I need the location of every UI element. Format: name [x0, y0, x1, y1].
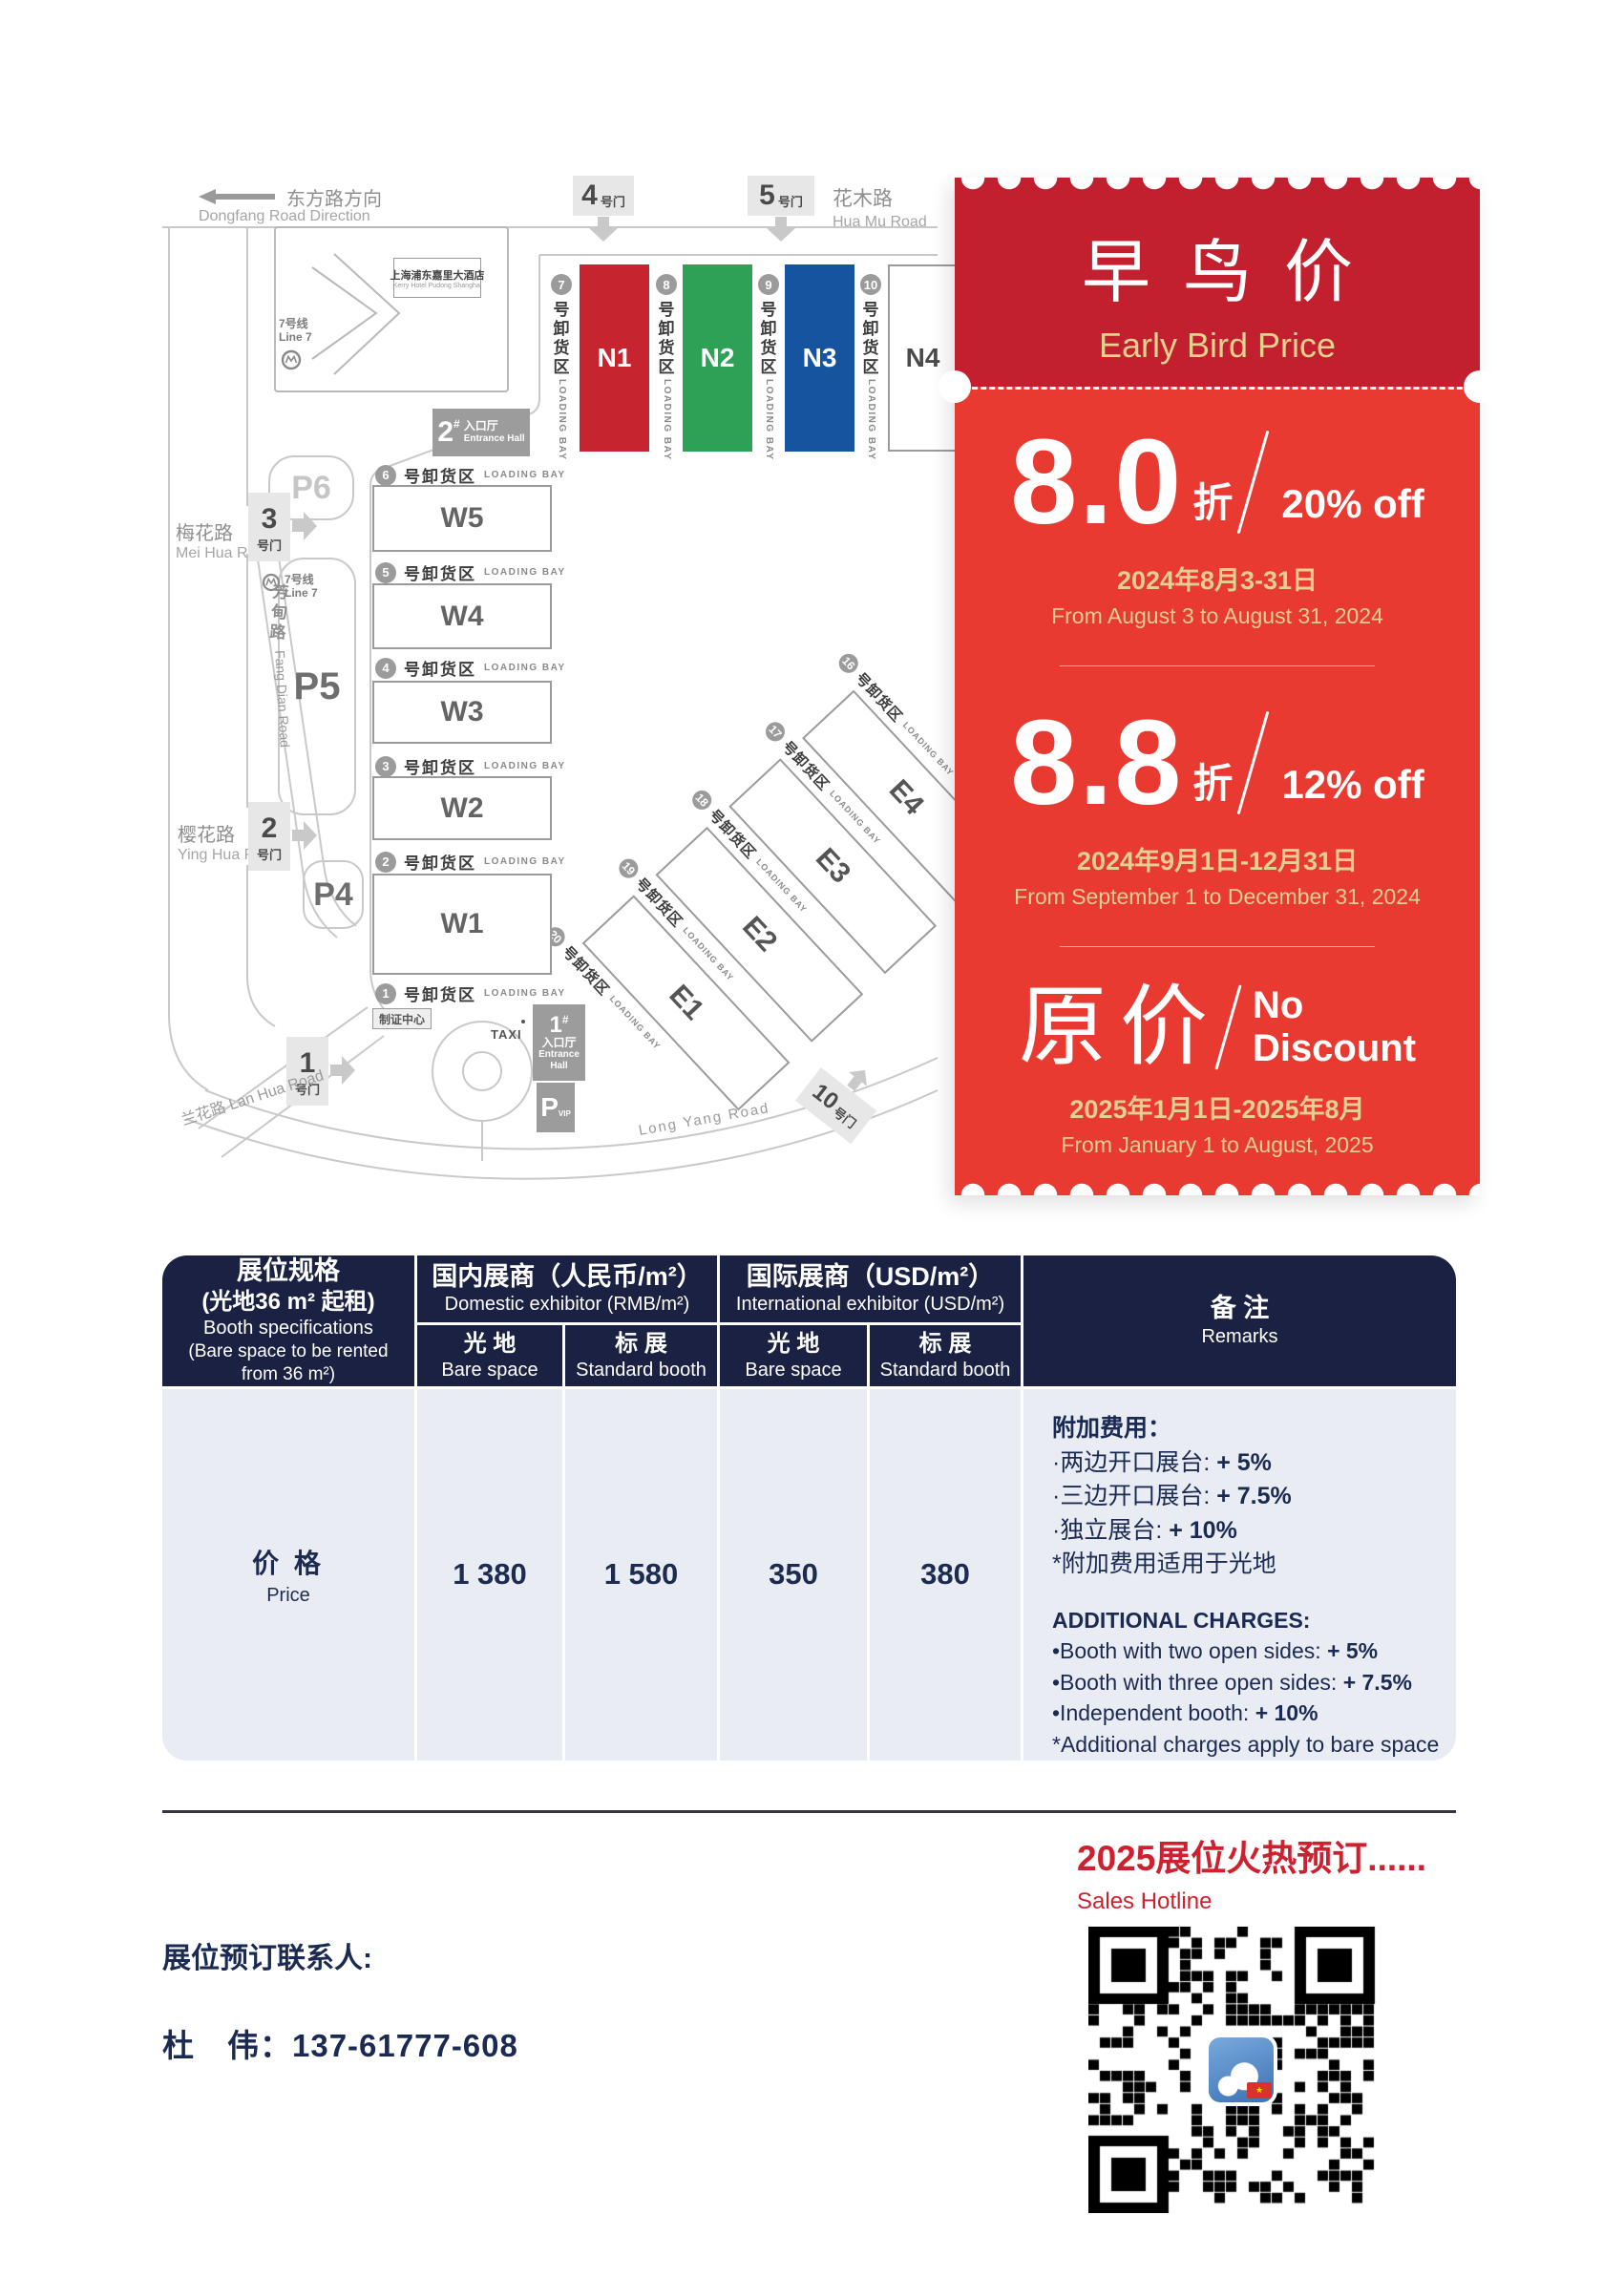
- gate-3-right-arrow-icon: [292, 512, 317, 540]
- entrance-1-cn: 入口厅: [541, 1037, 576, 1050]
- header-intl-standard: 标 展 Standard booth: [870, 1325, 1023, 1386]
- remarks-en: Remarks: [1201, 1325, 1277, 1349]
- gate-2-number: 2: [262, 814, 278, 843]
- domestic-standard-en: Standard booth: [576, 1359, 707, 1382]
- tier-big-value: 8.8: [1010, 703, 1183, 823]
- remark-text: •Independent booth:: [1052, 1700, 1255, 1725]
- line7-cn: 7号线: [279, 317, 312, 330]
- entrance-1-hash: #: [562, 1014, 569, 1027]
- taxi-dot: [521, 1020, 525, 1023]
- price-table: 展位规格 (光地36 m² 起租) Booth specifications (…: [162, 1255, 1456, 1733]
- coupon-divider: [1060, 665, 1375, 666]
- loading-bay-number: 10: [860, 274, 881, 295]
- entrance-1-number: 1: [549, 1014, 561, 1037]
- price-label-cn: 价 格: [252, 1543, 325, 1581]
- hotline-subtitle: Sales Hotline: [1077, 1888, 1426, 1915]
- entrance-2-cn: 入口厅: [464, 420, 498, 433]
- tier-unit: 折: [1192, 751, 1233, 810]
- price-table-header: 展位规格 (光地36 m² 起租) Booth specifications (…: [162, 1255, 1456, 1386]
- loading-bay-2-label: 2号卸货区LOADING BAY: [375, 850, 566, 874]
- parking-p4: P4: [304, 861, 363, 928]
- coupon-tier-1-dates: 2024年8月3-31日From August 3 to August 31, …: [955, 559, 1480, 629]
- value-intl-standard: 380: [920, 1557, 970, 1592]
- kerry-hotel-cn: 上海浦东嘉里大酒店: [390, 267, 485, 283]
- remark-value: + 10%: [1169, 1517, 1237, 1544]
- tier-off-lines: NoDiscount: [1253, 984, 1416, 1070]
- gate-3-suffix: 号门: [257, 536, 282, 554]
- dongfang-cn: 东方路方向: [286, 183, 382, 211]
- kerry-hotel-box: 上海浦东嘉里大酒店 Kerry Hotel Pudong Shanghai: [393, 258, 481, 298]
- gate-5: 5 号门: [748, 176, 814, 216]
- coupon-notch-right: [1464, 370, 1496, 403]
- intl-standard-cn: 标 展: [919, 1330, 972, 1359]
- coupon-notch-left: [939, 370, 971, 403]
- hall-w5: W5: [372, 485, 552, 552]
- hall-n1: N1: [580, 264, 649, 452]
- loading-bay-cn: 号卸货区: [404, 981, 476, 1005]
- tier-off: 12% off: [1281, 762, 1424, 808]
- tier-date-cn: 2024年9月1日-12月31日: [955, 840, 1480, 877]
- gate-2: 2 号门: [248, 802, 290, 871]
- international-cn: 国际展商（USD/m²）: [747, 1261, 995, 1294]
- hall-w1: W1: [372, 874, 552, 975]
- coupon-tier-1: 8.0折20% off: [955, 422, 1480, 542]
- header-domestic: 国内展商（人民币/m²） Domestic exhibitor (RMB/m²): [417, 1255, 720, 1325]
- entrance-2-number: 2: [437, 418, 453, 447]
- booth-specs-en2: (Bare space to be rented: [188, 1340, 388, 1363]
- loading-bay-number: 5: [375, 562, 396, 583]
- price-row-label: 价 格 Price: [162, 1389, 417, 1761]
- loading-bay-1-label: 1号卸货区LOADING BAY: [375, 981, 566, 1005]
- coupon-divider: [1060, 946, 1375, 947]
- hall-n3: N3: [785, 264, 854, 452]
- tier-big-value: 8.0: [1010, 422, 1183, 542]
- line7-en: Line 7: [279, 330, 312, 344]
- tier-date-cn: 2024年8月3-31日: [955, 559, 1480, 597]
- remarks-cn-line: ·三边开口展台: + 7.5%: [1052, 1480, 1292, 1514]
- loading-bay-en: LOADING BAY: [866, 379, 876, 461]
- intl-standard-en: Standard booth: [880, 1359, 1011, 1382]
- header-domestic-standard: 标 展 Standard booth: [565, 1325, 720, 1386]
- taxi-label: TAXI: [491, 1027, 522, 1042]
- gate-5-suffix: 号门: [778, 192, 803, 210]
- gate-3-number: 3: [262, 505, 278, 534]
- header-booth-specs: 展位规格 (光地36 m² 起租) Booth specifications (…: [162, 1255, 417, 1386]
- loading-bay-en: LOADING BAY: [484, 567, 566, 578]
- loading-bay-en: LOADING BAY: [484, 663, 566, 673]
- coupon-header-band: 早鸟价 Early Bird Price: [955, 195, 1480, 387]
- hotline-title: 2025展位火热预订......: [1077, 1829, 1426, 1881]
- loading-bay-10-label: 10号卸货区LOADING BAY: [860, 274, 881, 463]
- loading-bay-en-wrap: LOADING BAY: [551, 377, 572, 463]
- loading-bay-cn: 号卸货区: [404, 463, 476, 487]
- tier-off: 20% off: [1281, 481, 1424, 527]
- contact-phone: 杜 伟：137-61777-608: [162, 2020, 518, 2066]
- line7-label-kerry: 7号线 Line 7: [279, 317, 312, 345]
- remark-value: + 5%: [1216, 1449, 1272, 1476]
- tier-date-en: From August 3 to August 31, 2024: [955, 603, 1480, 629]
- loading-bay-number: 8: [656, 274, 677, 295]
- tier-slash-icon: [1237, 431, 1270, 534]
- coupon-subtitle: Early Bird Price: [955, 326, 1480, 366]
- value-intl-bare: 350: [769, 1557, 818, 1592]
- tier-unit: 折: [1192, 471, 1233, 529]
- remark-text: *附加费用适用于光地: [1052, 1550, 1276, 1577]
- remark-text: *Additional charges apply to bare space: [1052, 1732, 1439, 1757]
- loading-bay-en-wrap: LOADING BAY: [656, 377, 677, 463]
- loading-bay-7-label: 7号卸货区LOADING BAY: [551, 274, 572, 463]
- tier-date-en: From September 1 to December 31, 2024: [955, 884, 1480, 910]
- hall-w2: W2: [372, 776, 552, 840]
- remark-text: •Booth with two open sides:: [1052, 1638, 1327, 1663]
- header-intl-bare: 光 地 Bare space: [720, 1325, 870, 1386]
- loading-bay-3-label: 3号卸货区LOADING BAY: [375, 754, 566, 778]
- coupon-scallop-top: [955, 178, 1480, 195]
- remark-text: ·三边开口展台:: [1052, 1483, 1216, 1509]
- badge-center-box: 制证中心: [372, 1008, 432, 1029]
- domestic-bare-cn: 光 地: [464, 1330, 517, 1359]
- loading-bay-8-label: 8号卸货区LOADING BAY: [656, 274, 677, 463]
- booth-specs-en3: from 36 m²): [242, 1363, 335, 1386]
- loading-bay-cn: 号卸货区: [404, 850, 476, 874]
- loading-bay-9-label: 9号卸货区LOADING BAY: [758, 274, 779, 463]
- tier-slash-icon: [1237, 711, 1270, 814]
- price-domestic-bare: 1 380: [417, 1389, 565, 1761]
- coupon-tier-3-dates: 2025年1月1日-2025年8月From January 1 to Augus…: [955, 1088, 1480, 1158]
- header-domestic-bare: 光 地 Bare space: [417, 1325, 565, 1386]
- gate-5-down-arrow-icon: [767, 217, 795, 242]
- price-intl-bare: 350: [720, 1389, 870, 1761]
- gate-2-suffix: 号门: [257, 845, 282, 863]
- coupon-tier-2: 8.8折12% off: [955, 703, 1480, 823]
- early-bird-coupon: 早鸟价 Early Bird Price 8.0折20% off2024年8月3…: [955, 178, 1480, 1195]
- remarks-en-title: ADDITIONAL CHARGES:: [1052, 1605, 1310, 1636]
- gate-10-suffix: 号门: [830, 1102, 860, 1131]
- value-domestic-standard: 1 580: [604, 1557, 679, 1592]
- loading-bay-en: LOADING BAY: [484, 761, 566, 771]
- coupon-tier-2-dates: 2024年9月1日-12月31日From September 1 to Dece…: [955, 840, 1480, 910]
- loading-bay-number: 9: [758, 274, 779, 295]
- remark-text: •Booth with three open sides:: [1052, 1670, 1343, 1695]
- loading-bay-5-label: 5号卸货区LOADING BAY: [375, 560, 566, 584]
- left-arrow-icon: [199, 189, 275, 204]
- remark-value: + 5%: [1327, 1638, 1378, 1663]
- booth-specs-cn1: 展位规格: [237, 1255, 340, 1288]
- hall-n4: N4: [888, 264, 958, 452]
- tier-off-line: Discount: [1253, 1027, 1416, 1070]
- remark-value: + 7.5%: [1216, 1483, 1292, 1509]
- coupon-scallop-bottom: [955, 1178, 1480, 1195]
- booth-specs-cn2: (光地36 m² 起租): [201, 1288, 374, 1317]
- tier-date-en: From January 1 to August, 2025: [955, 1132, 1480, 1158]
- loading-bay-cn: 号卸货区: [862, 301, 880, 377]
- hall-n2: N2: [683, 264, 752, 452]
- loading-bay-en: LOADING BAY: [662, 379, 672, 461]
- remark-value: + 7.5%: [1343, 1670, 1412, 1695]
- domestic-bare-en: Bare space: [441, 1359, 538, 1382]
- loading-bay-en: LOADING BAY: [484, 856, 566, 867]
- entrance-hall-2: 2 # 入口厅 Entrance Hall: [432, 409, 530, 456]
- entrance-hall-1: 1 # 入口厅 Entrance Hall: [533, 1004, 585, 1081]
- loading-bay-cn: 号卸货区: [404, 754, 476, 778]
- remarks-cn-line: ·独立展台: + 10%: [1052, 1514, 1237, 1549]
- remarks-en-line: •Booth with three open sides: + 7.5%: [1052, 1667, 1412, 1698]
- loading-bay-en: LOADING BAY: [764, 379, 774, 461]
- hall-w3: W3: [372, 681, 552, 744]
- entrance-2-en: Entrance Hall: [464, 433, 525, 445]
- tier-off-line: No: [1253, 984, 1416, 1027]
- remark-text: ·独立展台:: [1052, 1517, 1169, 1544]
- remarks-cn-line: ·两边开口展台: + 5%: [1052, 1446, 1272, 1481]
- gate-4-suffix: 号门: [601, 192, 625, 210]
- loading-bay-cn: 号卸货区: [760, 301, 778, 377]
- hall-w4: W4: [372, 583, 552, 649]
- venue-map: 东方路方向 Dongfang Road Direction 4 号门 5 号门 …: [162, 162, 964, 1203]
- loading-bay-number: 7: [551, 274, 572, 295]
- contact-label: 展位预订联系人:: [162, 1934, 372, 1976]
- remarks-cn: 备 注: [1211, 1293, 1270, 1325]
- loading-bay-en: LOADING BAY: [484, 988, 566, 999]
- booth-specs-en1: Booth specifications: [203, 1317, 373, 1340]
- gate-4-down-arrow-icon: [589, 217, 618, 242]
- loading-bay-cn: 号卸货区: [404, 560, 476, 584]
- parking-vip-p: P: [540, 1092, 559, 1123]
- tier-date-cn: 2025年1月1日-2025年8月: [955, 1088, 1480, 1126]
- tier-big-value: 原价: [1019, 983, 1221, 1071]
- remarks-cn-title: 附加费用：: [1052, 1412, 1171, 1446]
- china-flag-icon: ★: [1247, 2082, 1272, 2099]
- loading-bay-en-wrap: LOADING BAY: [758, 377, 779, 463]
- international-en: International exhibitor (USD/m²): [736, 1293, 1004, 1317]
- gate-4: 4 号门: [573, 176, 634, 216]
- domestic-en: Domestic exhibitor (RMB/m²): [445, 1293, 690, 1317]
- loading-bay-number: 2: [375, 852, 396, 873]
- wechat-qr-code: ★: [1088, 1927, 1394, 2223]
- remarks-cell: 附加费用：·两边开口展台: + 5%·三边开口展台: + 7.5%·独立展台: …: [1023, 1389, 1456, 1761]
- flyer-page: 东方路方向 Dongfang Road Direction 4 号门 5 号门 …: [0, 0, 1624, 2278]
- loading-bay-number: 3: [375, 756, 396, 777]
- parking-vip-sub: VIP: [559, 1109, 571, 1118]
- loading-bay-en-wrap: LOADING BAY: [860, 377, 881, 463]
- dongfang-en: Dongfang Road Direction: [199, 208, 370, 225]
- remarks-cn-line: *附加费用适用于光地: [1052, 1548, 1276, 1582]
- entrance-1-en2: Hall: [550, 1061, 567, 1072]
- metro-icon: [281, 349, 302, 370]
- remark-value: + 10%: [1255, 1700, 1318, 1725]
- loading-bay-cn: 号卸货区: [404, 656, 476, 680]
- loading-bay-6-label: 6号卸货区LOADING BAY: [375, 463, 566, 487]
- loading-bay-number: 6: [375, 465, 396, 486]
- header-remarks: 备 注 Remarks: [1023, 1255, 1456, 1386]
- loading-bay-number: 4: [375, 658, 396, 679]
- loading-bay-cn: 号卸货区: [553, 301, 571, 377]
- sales-hotline-block: 2025展位火热预订...... Sales Hotline: [1077, 1829, 1426, 1915]
- footer-divider: [162, 1810, 1456, 1813]
- domestic-cn: 国内展商（人民币/m²）: [432, 1261, 703, 1294]
- loading-bay-4-label: 4号卸货区LOADING BAY: [375, 656, 566, 680]
- intl-bare-en: Bare space: [745, 1359, 841, 1382]
- remark-text: ·两边开口展台:: [1052, 1449, 1216, 1476]
- price-label-en: Price: [266, 1585, 310, 1607]
- huamu-road-label: 花木路 Hua Mu Road: [833, 183, 927, 231]
- header-international: 国际展商（USD/m²） International exhibitor (US…: [720, 1255, 1023, 1325]
- gate-2-right-arrow-icon: [292, 821, 317, 850]
- remarks-en-line: •Booth with two open sides: + 5%: [1052, 1635, 1378, 1667]
- huamu-cn: 花木路: [833, 183, 927, 212]
- huamu-en: Hua Mu Road: [833, 214, 927, 231]
- loading-bay-en: LOADING BAY: [484, 470, 566, 480]
- remarks-en-line: •Independent booth: + 10%: [1052, 1698, 1318, 1729]
- loading-bay-number: 1: [375, 983, 396, 1004]
- entrance-2-hash: #: [453, 418, 460, 432]
- coupon-title: 早鸟价: [955, 195, 1480, 316]
- gate-1-right-arrow-icon: [330, 1056, 355, 1085]
- gate-4-number: 4: [581, 181, 598, 210]
- entrance-1-en1: Entrance: [538, 1049, 580, 1061]
- intl-bare-cn: 光 地: [768, 1330, 820, 1359]
- remarks-en-line: *Additional charges apply to bare space: [1052, 1729, 1439, 1761]
- parking-vip: P VIP: [537, 1083, 575, 1132]
- price-intl-standard: 380: [870, 1389, 1023, 1761]
- loading-bay-en: LOADING BAY: [557, 379, 567, 461]
- loading-bay-cn: 号卸货区: [658, 301, 676, 377]
- gate-3: 3 号门: [248, 493, 290, 561]
- gate-5-number: 5: [759, 181, 775, 210]
- price-domestic-standard: 1 580: [565, 1389, 720, 1761]
- kerry-hotel-en: Kerry Hotel Pudong Shanghai: [393, 283, 482, 289]
- qr-center-logo: ★: [1205, 2034, 1277, 2106]
- value-domestic-bare: 1 380: [453, 1557, 527, 1592]
- domestic-standard-cn: 标 展: [615, 1330, 667, 1359]
- coupon-tier-3: 原价NoDiscount: [955, 983, 1480, 1071]
- price-table-body: 价 格 Price 1 380 1 580 350 380 附加费用：·两边开口…: [162, 1389, 1456, 1733]
- coupon-body: 8.0折20% off2024年8月3-31日From August 3 to …: [955, 387, 1480, 1178]
